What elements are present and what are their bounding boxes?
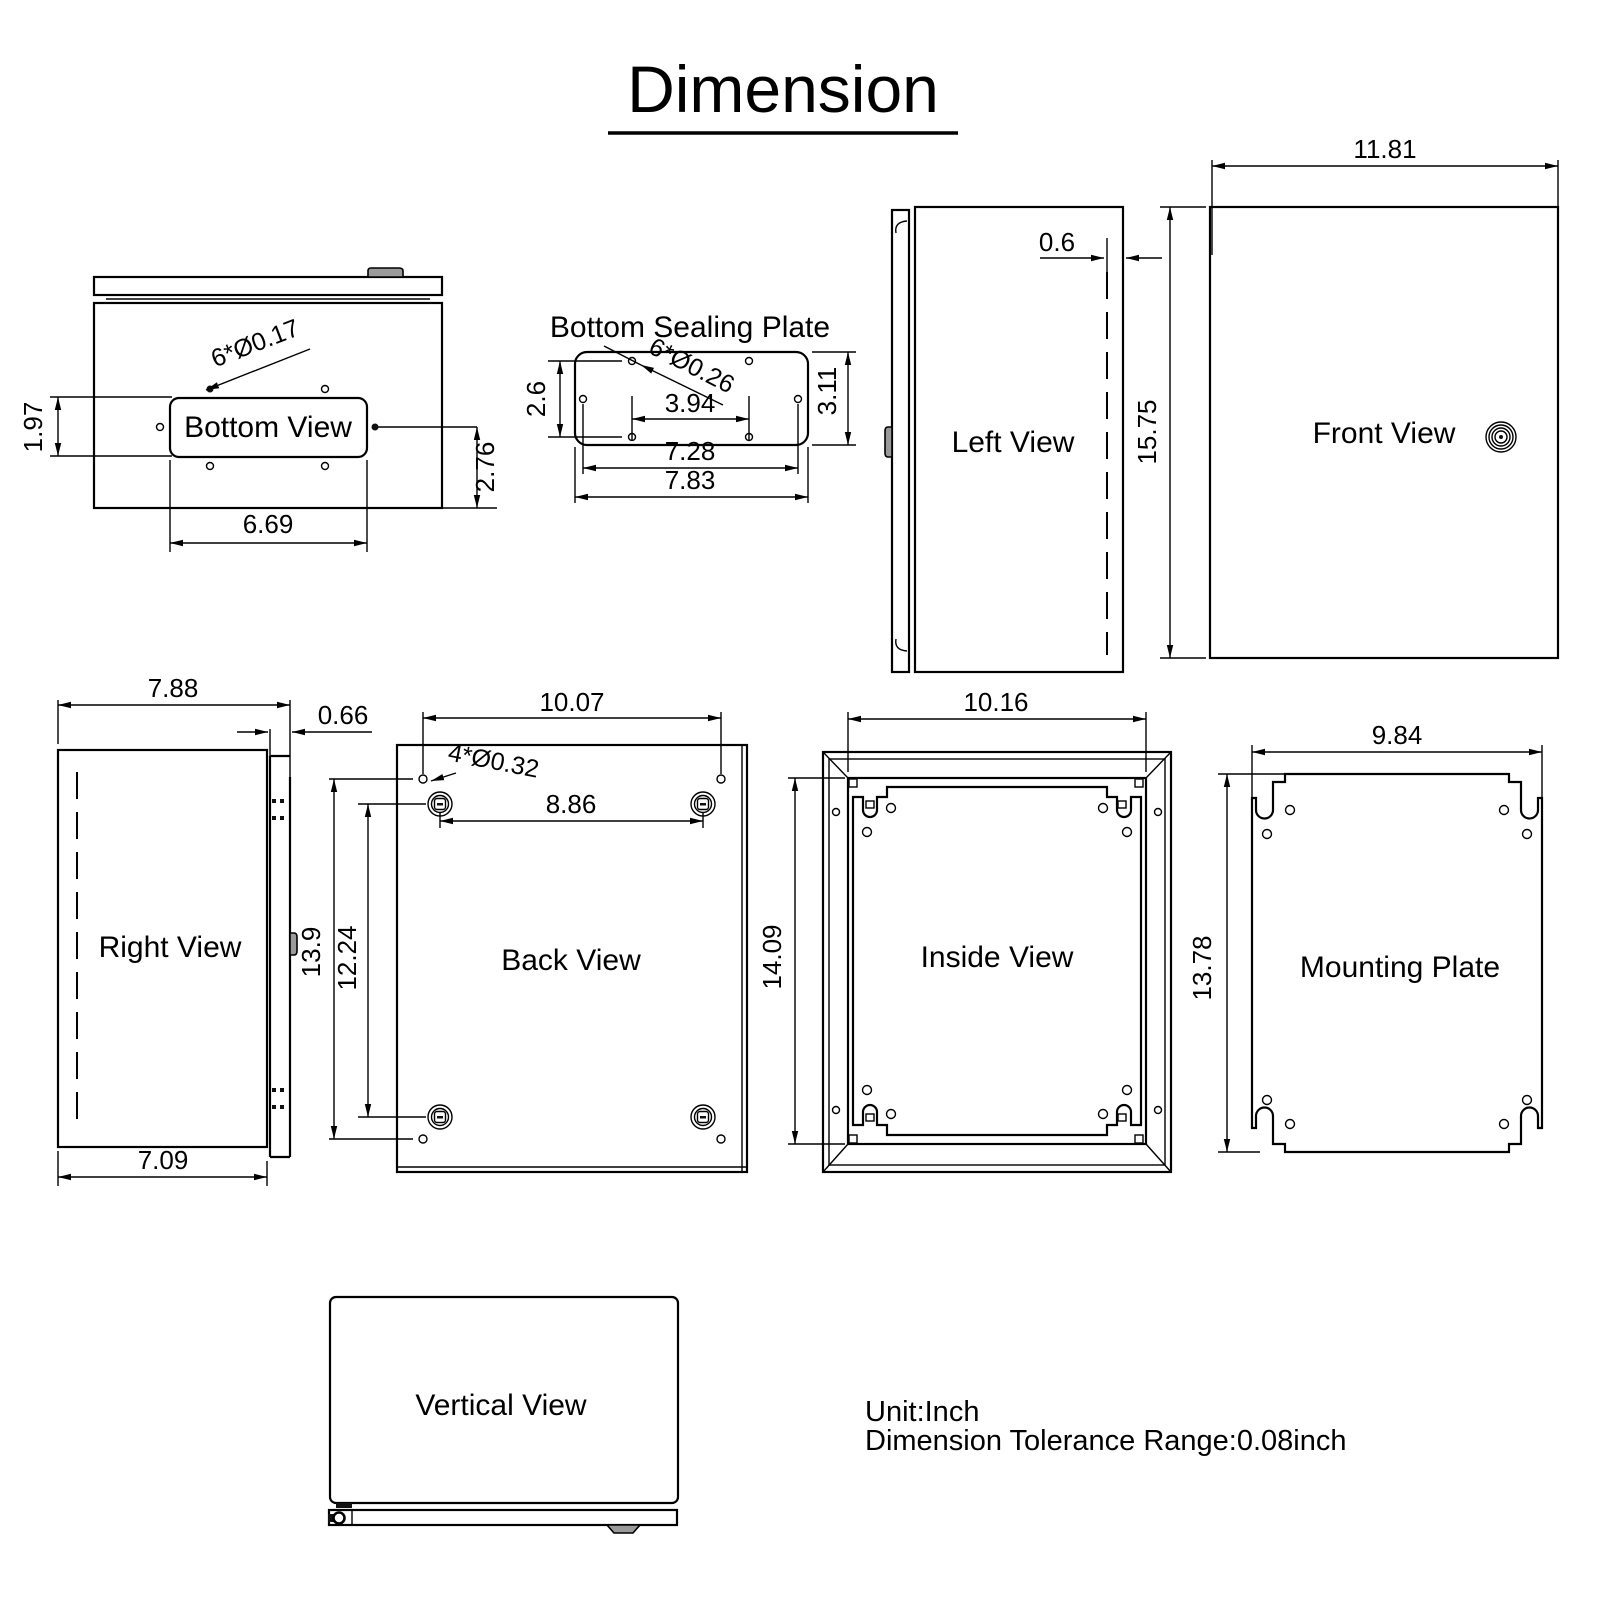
mounting-plate-label: Mounting Plate [1300, 951, 1500, 984]
front-view-label: Front View [1313, 417, 1456, 450]
dim-sealing-7-28: 7.28 [665, 436, 716, 466]
foot-tab-icon [607, 1525, 640, 1533]
note-tolerance: Dimension Tolerance Range:0.08inch [865, 1425, 1347, 1457]
dim-inside-14-09: 14.09 [757, 924, 787, 989]
bottom-view: Bottom View 6*Ø0.17 1.97 6.69 2.76 [18, 268, 500, 552]
dim-mounting-9-84: 9.84 [1372, 720, 1423, 750]
drawing-svg: Dimension Bottom View 6*Ø0.17 1.97 6.69 [0, 0, 1600, 1600]
inside-view: 10.16 14.09 Inside View [757, 687, 1171, 1172]
dim-front-11-81: 11.81 [1353, 134, 1416, 164]
inside-view-label: Inside View [921, 941, 1074, 974]
dim-back-13-9: 13.9 [296, 927, 326, 978]
dim-right-7-09: 7.09 [138, 1145, 189, 1175]
hinge-hook-bottom-icon [896, 639, 907, 651]
back-view-label: Back View [501, 944, 641, 977]
dim-back-12-24: 12.24 [332, 925, 362, 990]
latch-ring-icon [328, 1513, 345, 1524]
hinge-hook-top-icon [896, 221, 907, 233]
dim-bottom-2-76: 2.76 [470, 442, 500, 493]
bottom-hole-callout: 6*Ø0.17 [207, 314, 303, 373]
dim-bottom-1-97: 1.97 [18, 402, 48, 453]
notes: Unit:Inch Dimension Tolerance Range:0.08… [865, 1396, 1347, 1457]
dim-back-8-86: 8.86 [546, 789, 597, 819]
front-view: 11.81 15.75 Front View [1132, 134, 1558, 658]
right-view-label: Right View [99, 931, 242, 964]
door-latch-icon [885, 427, 892, 457]
dim-right-7-88: 7.88 [148, 673, 199, 703]
dim-front-15-75: 15.75 [1132, 399, 1162, 464]
dim-inside-10-16: 10.16 [963, 687, 1028, 717]
left-view: 0.6 Left View [885, 207, 1162, 672]
note-unit: Unit:Inch [865, 1396, 979, 1428]
sealing-plate-view: Bottom Sealing Plate 6*Ø0.26 2.6 3.11 3.… [521, 311, 856, 503]
dim-back-10-07: 10.07 [539, 687, 604, 717]
vertical-view: Vertical View [328, 1297, 678, 1533]
page-title: Dimension [627, 52, 939, 126]
lock-icon [1486, 422, 1516, 452]
hinge-screws-icon [272, 799, 284, 1109]
back-view: 4*Ø0.32 10.07 8.86 13.9 12.24 Back View [296, 687, 747, 1172]
dim-sealing-3-11: 3.11 [812, 367, 842, 416]
vertical-view-label: Vertical View [415, 1389, 587, 1422]
hinge-mark-icon [336, 1503, 352, 1508]
dim-sealing-7-83: 7.83 [665, 465, 716, 495]
sealing-plate-label: Bottom Sealing Plate [550, 311, 830, 344]
mounting-plate-view: 9.84 13.78 Mounting Plate [1187, 720, 1542, 1152]
dimension-drawing: Dimension Bottom View 6*Ø0.17 1.97 6.69 [0, 0, 1600, 1600]
dim-mounting-13-78: 13.78 [1187, 935, 1217, 1000]
lid-latch-tab-icon [368, 268, 403, 277]
bottom-view-label: Bottom View [184, 411, 352, 444]
dim-left-0-6: 0.6 [1039, 227, 1075, 257]
dim-sealing-3-94: 3.94 [665, 388, 716, 418]
left-view-label: Left View [952, 426, 1075, 459]
dim-bottom-6-69: 6.69 [243, 509, 294, 539]
drawing-title: Dimension [608, 52, 958, 133]
dim-sealing-2-6: 2.6 [521, 381, 551, 417]
dim-right-0-66: 0.66 [318, 700, 369, 730]
